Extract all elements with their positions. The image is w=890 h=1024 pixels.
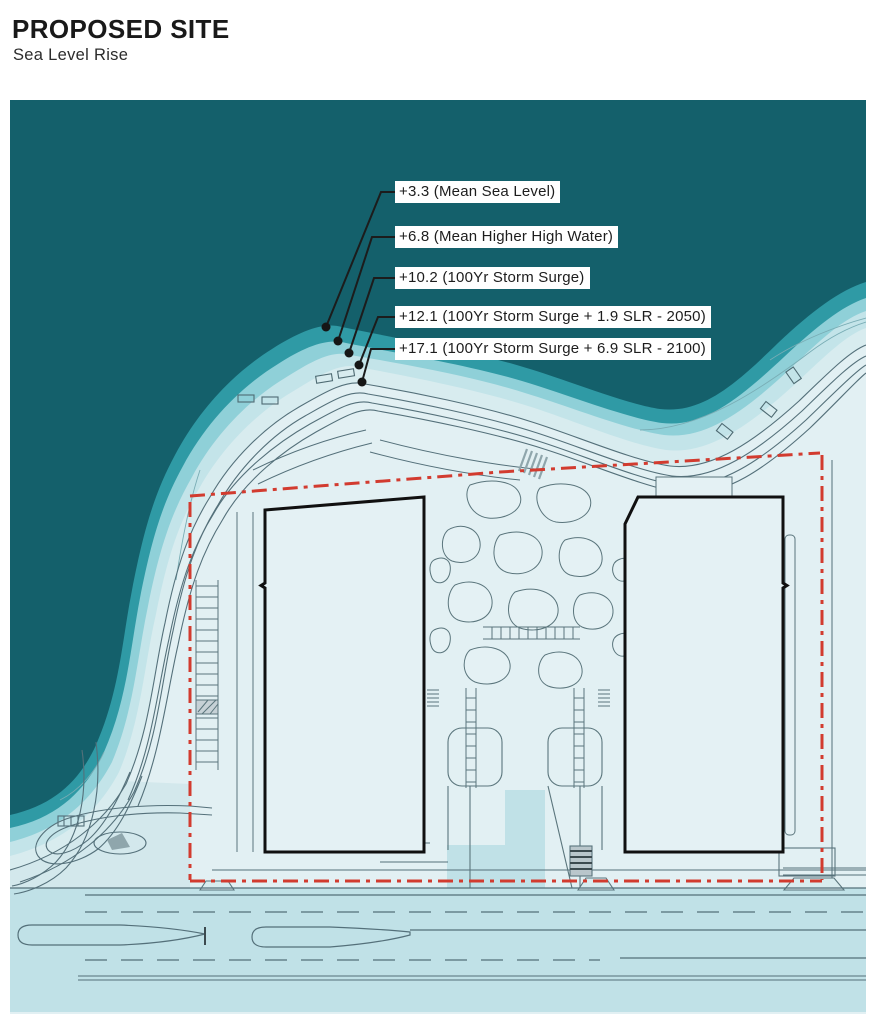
- callout-mhhw: +6.8 (Mean Higher High Water): [395, 226, 618, 248]
- sea-level-rise-diagram-page: PROPOSED SITE Sea Level Rise: [0, 0, 890, 1024]
- building-left: [261, 497, 424, 852]
- callout-mean-sea-level: +3.3 (Mean Sea Level): [395, 181, 560, 203]
- page-subtitle: Sea Level Rise: [13, 46, 128, 65]
- canal-strip: [505, 790, 545, 888]
- page-title: PROPOSED SITE: [12, 14, 230, 45]
- callout-storm-surge-2100: +17.1 (100Yr Storm Surge + 6.9 SLR - 210…: [395, 338, 711, 360]
- building-right: [625, 497, 787, 852]
- callout-storm-surge-2050: +12.1 (100Yr Storm Surge + 1.9 SLR - 205…: [395, 306, 711, 328]
- building-annex-right: [656, 477, 732, 497]
- callout-100yr-storm-surge: +10.2 (100Yr Storm Surge): [395, 267, 590, 289]
- road-zone: [10, 888, 866, 1012]
- building-annex-side: [785, 535, 795, 835]
